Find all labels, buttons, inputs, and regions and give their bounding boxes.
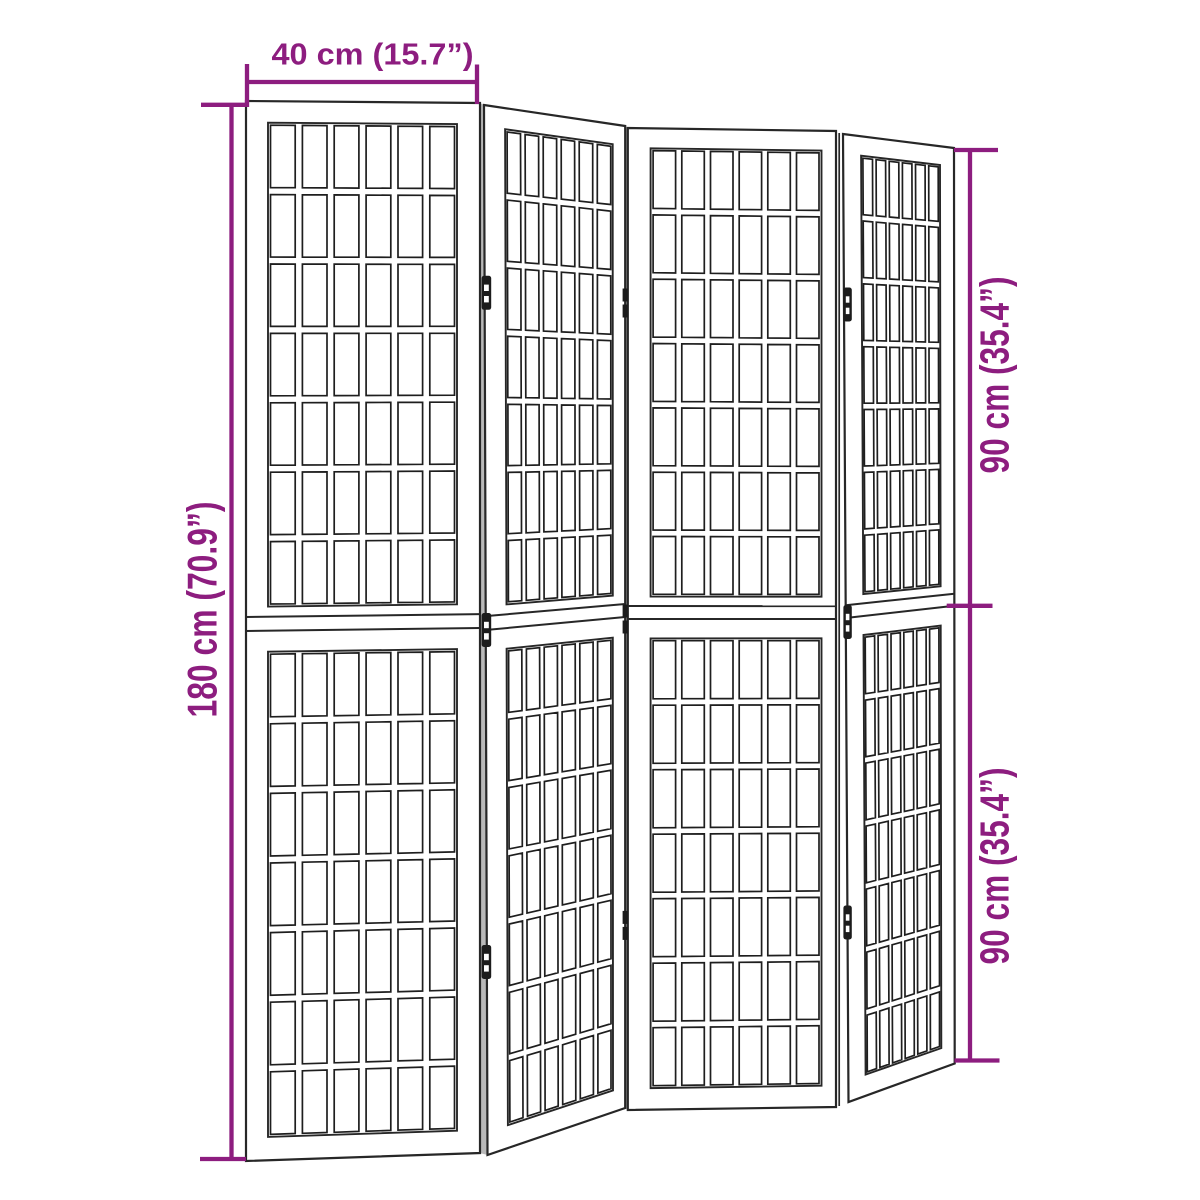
svg-text:180 cm (70.9”): 180 cm (70.9”) <box>179 502 226 718</box>
svg-text:40 cm (15.7”): 40 cm (15.7”) <box>272 37 474 72</box>
svg-text:90 cm (35.4”): 90 cm (35.4”) <box>972 277 1018 474</box>
svg-text:90 cm (35.4”): 90 cm (35.4”) <box>972 768 1018 965</box>
